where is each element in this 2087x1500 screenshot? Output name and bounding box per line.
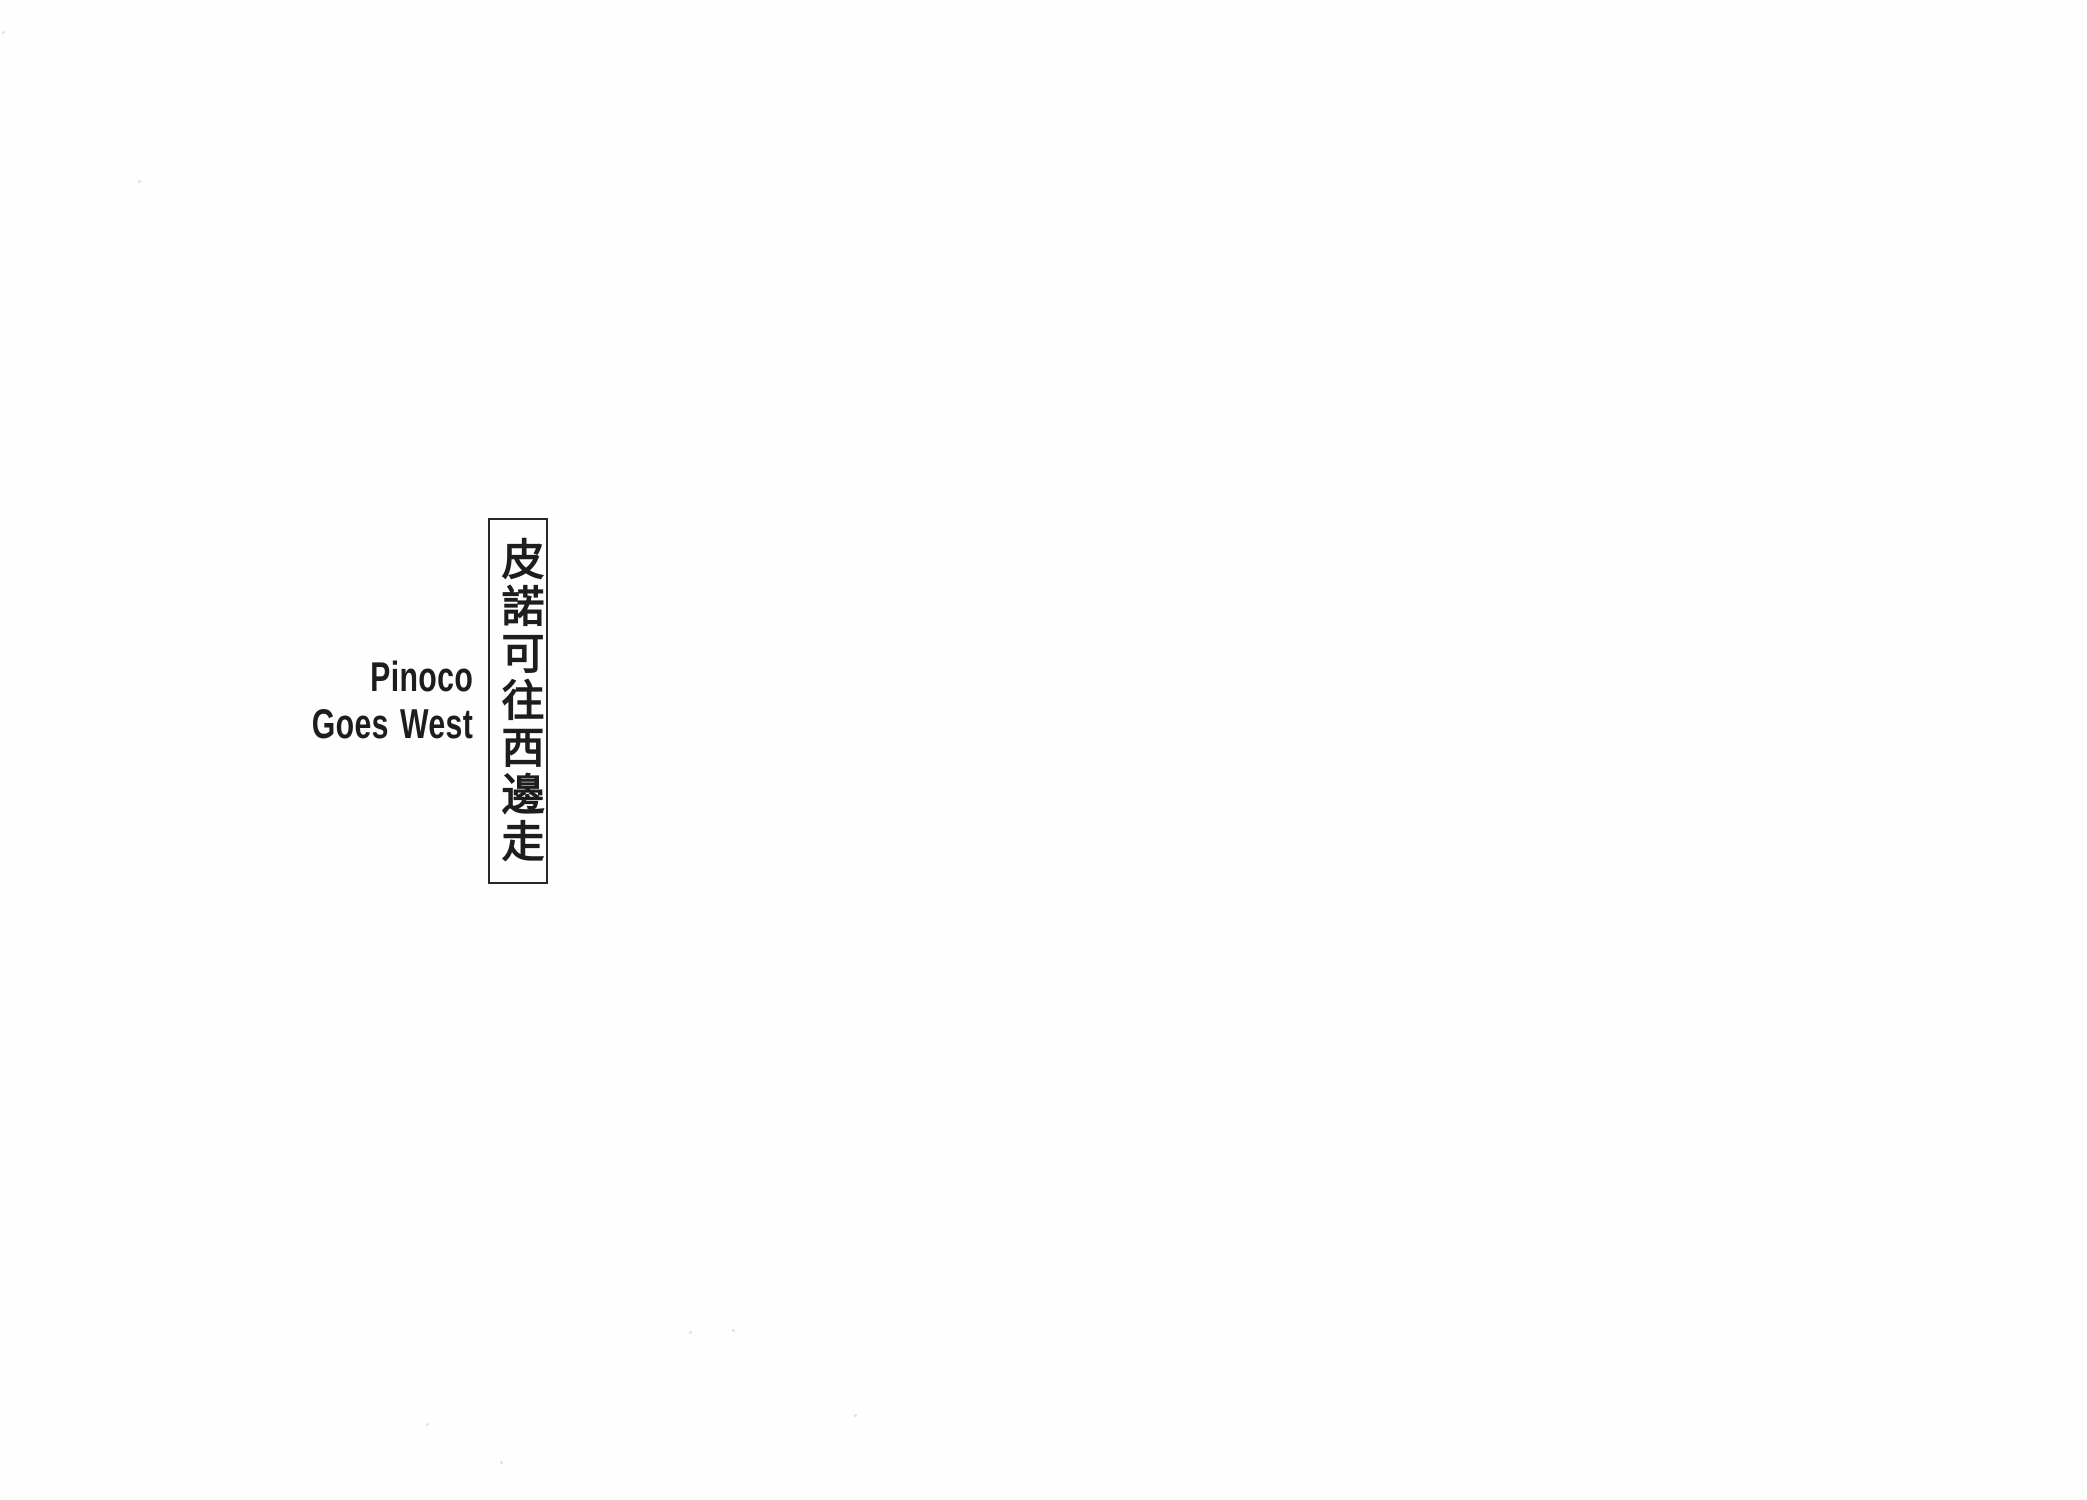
scanned-title-page: Pinoco Goes West 皮諾可往西邊走 bbox=[0, 0, 2087, 1500]
dust-speck bbox=[500, 1461, 503, 1464]
dust-speck bbox=[689, 1331, 692, 1334]
vertical-title-box: 皮諾可往西邊走 bbox=[488, 518, 548, 884]
dust-speck bbox=[854, 1414, 857, 1417]
dust-speck bbox=[426, 1423, 429, 1426]
english-title: Pinoco Goes West bbox=[312, 653, 473, 747]
dust-speck bbox=[2, 31, 5, 34]
dust-speck bbox=[138, 180, 141, 183]
vertical-title-text: 皮諾可往西邊走 bbox=[492, 537, 544, 866]
english-title-line-1: Pinoco bbox=[312, 653, 473, 700]
dust-speck bbox=[732, 1329, 735, 1332]
english-title-line-2: Goes West bbox=[312, 700, 473, 747]
